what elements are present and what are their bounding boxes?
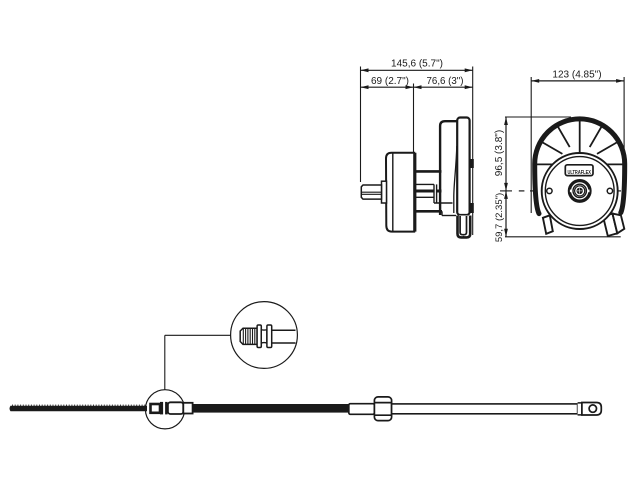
svg-text:59,7 (2.35"): 59,7 (2.35")	[494, 193, 505, 242]
svg-text:145,6 (5.7"): 145,6 (5.7")	[391, 59, 443, 70]
svg-text:123 (4.85"): 123 (4.85")	[552, 70, 601, 81]
svg-text:69 (2.7"): 69 (2.7")	[371, 76, 409, 87]
svg-text:96,5 (3.8"): 96,5 (3.8")	[494, 130, 505, 176]
svg-text:ULTRAFLEX: ULTRAFLEX	[567, 170, 591, 176]
svg-text:76,6 (3"): 76,6 (3")	[427, 76, 464, 87]
